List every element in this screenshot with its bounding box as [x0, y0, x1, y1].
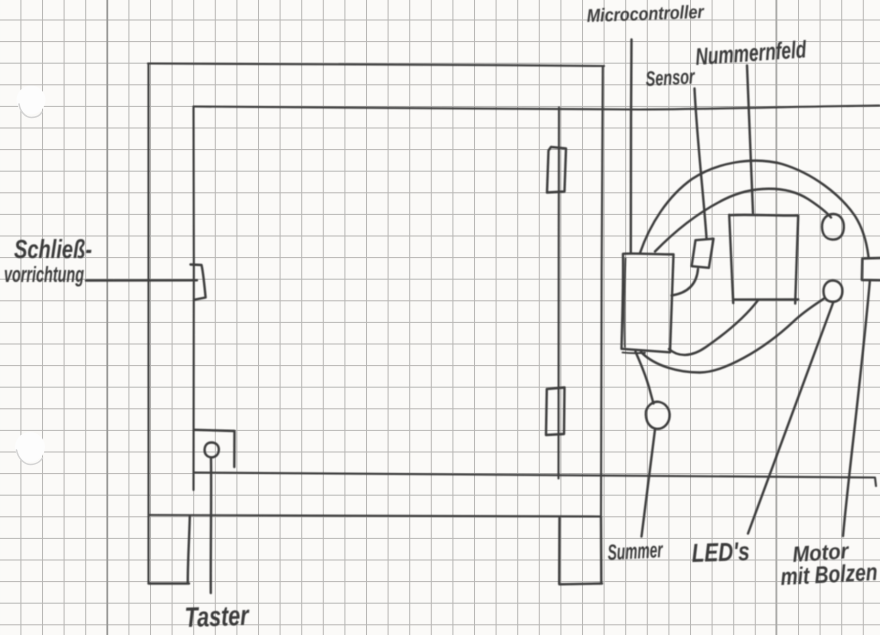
svg-text:Schließ-: Schließ- [14, 234, 92, 264]
svg-text:Summer: Summer [607, 537, 664, 565]
svg-text:mit Bolzen: mit Bolzen [780, 559, 878, 591]
svg-text:Sensor: Sensor [645, 65, 696, 91]
svg-text:LED's: LED's [691, 536, 750, 568]
svg-text:vorrichtung: vorrichtung [4, 262, 84, 287]
svg-text:Microcontroller: Microcontroller [586, 1, 705, 26]
svg-text:Taster: Taster [184, 600, 251, 633]
